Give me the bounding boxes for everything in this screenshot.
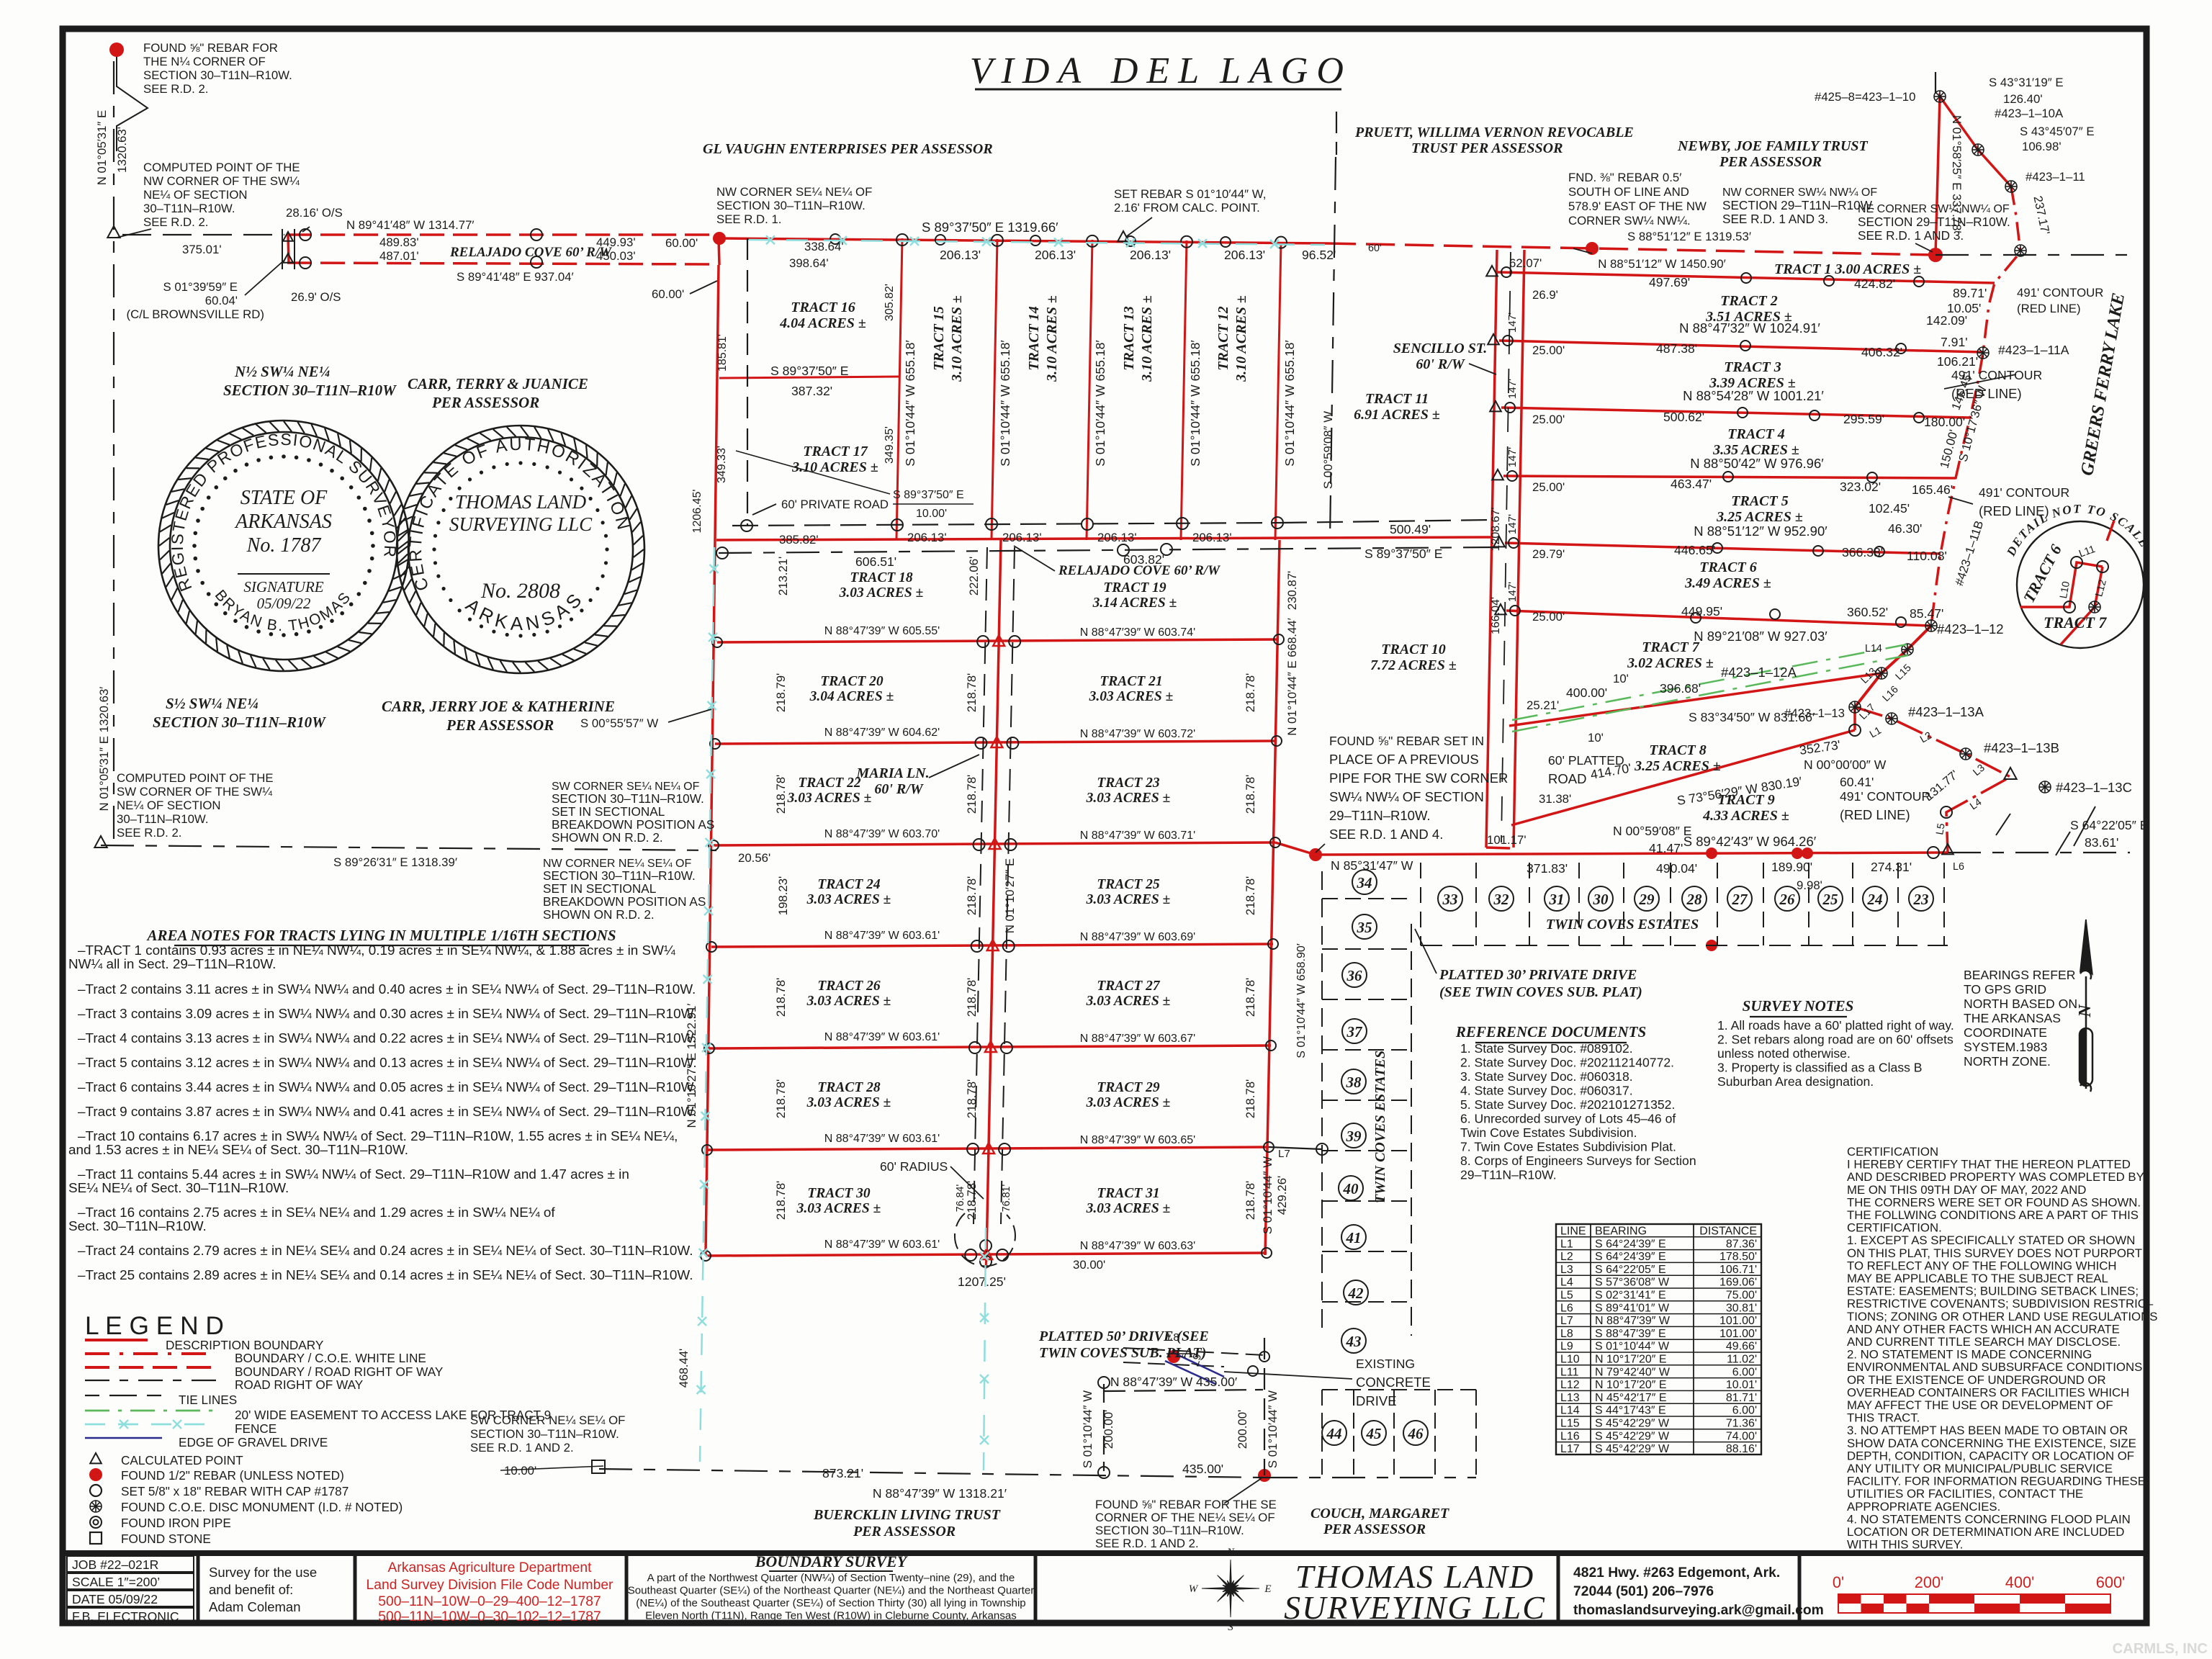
svg-text:218.78': 218.78' <box>1244 775 1257 814</box>
svg-text:30–T11N–R10W.: 30–T11N–R10W. <box>143 202 235 215</box>
svg-text:N 88°47′39″ W 603.61': N 88°47′39″ W 603.61' <box>824 1238 940 1251</box>
svg-text:9.98': 9.98' <box>1797 878 1822 892</box>
svg-text:S 88°47′39″ E: S 88°47′39″ E <box>1595 1328 1666 1340</box>
svg-text:N 88°47′39″ W 603.69': N 88°47′39″ W 603.69' <box>1080 931 1195 943</box>
svg-text:Adam Coleman: Adam Coleman <box>209 1599 301 1614</box>
svg-text:FOUND ⅝" REBAR SET IN: FOUND ⅝" REBAR SET IN <box>1329 734 1484 748</box>
svg-text:10.00': 10.00' <box>916 508 947 520</box>
svg-text:MAY AFFECT THE USE OR DEVELOPM: MAY AFFECT THE USE OR DEVELOPMENT OF <box>1847 1398 2113 1412</box>
svg-text:44: 44 <box>1326 1425 1342 1442</box>
svg-text:S 64°24′39″ E: S 64°24′39″ E <box>1595 1238 1666 1250</box>
svg-text:500.62': 500.62' <box>1663 410 1704 424</box>
svg-text:TRACT 17: TRACT 17 <box>803 444 868 459</box>
svg-text:218.78': 218.78' <box>965 673 979 713</box>
svg-text:L14: L14 <box>1560 1405 1580 1417</box>
svg-text:CARR, TERRY & JUANICE: CARR, TERRY & JUANICE <box>408 375 588 392</box>
svg-text:3.14 ACRES ±: 3.14 ACRES ± <box>1092 595 1177 611</box>
svg-text:106.21': 106.21' <box>1937 354 1978 369</box>
svg-text:TWIN COVES ESTATES: TWIN COVES ESTATES <box>1372 1051 1388 1203</box>
svg-text:Eleven North (T11N), Range Ten: Eleven North (T11N), Range Ten West (R10… <box>645 1610 1017 1622</box>
svg-text:S 64°22′05″ E: S 64°22′05″ E <box>1595 1264 1666 1276</box>
svg-text:4.04 ACRES ±: 4.04 ACRES ± <box>779 315 866 331</box>
svg-text:147': 147' <box>1506 514 1519 534</box>
svg-text:N 88°51′12″ W 952.90′: N 88°51′12″ W 952.90′ <box>1694 523 1827 539</box>
svg-text:TRACT 15: TRACT 15 <box>931 306 947 370</box>
svg-text:101.00': 101.00' <box>1719 1315 1757 1327</box>
svg-text:ME ON THIS 09TH DAY OF MAY, 20: ME ON THIS 09TH DAY OF MAY, 2022 AND <box>1847 1183 2086 1197</box>
svg-text:CARR, JERRY JOE & KATHERINE: CARR, JERRY JOE & KATHERINE <box>382 698 615 715</box>
svg-text:COMPUTED POINT OF THE: COMPUTED POINT OF THE <box>143 161 300 174</box>
svg-text:SHOW DATA CONCERNING THE EXIST: SHOW DATA CONCERNING THE EXISTENCE, SIZE <box>1847 1437 2136 1450</box>
svg-text:446.65': 446.65' <box>1674 543 1715 557</box>
svg-text:ESTATE: EASEMENTS; BUILDING SE: ESTATE: EASEMENTS; BUILDING SETBACK LINE… <box>1847 1285 2139 1298</box>
svg-text:4. NO STATEMENTS CONCERNING FL: 4. NO STATEMENTS CONCERNING FLOOD PLAIN <box>1847 1512 2131 1526</box>
svg-text:406.32': 406.32' <box>1861 345 1902 359</box>
svg-text:I HEREBY CERTIFY THAT THE HERE: I HEREBY CERTIFY THAT THE HEREON PLATTED <box>1847 1158 2131 1172</box>
svg-text:FOUND ⅝" REBAR FOR THE SE: FOUND ⅝" REBAR FOR THE SE <box>1095 1498 1277 1511</box>
svg-text:N 88°47′39″ W 603.71': N 88°47′39″ W 603.71' <box>1080 829 1195 842</box>
svg-text:TRACT 12: TRACT 12 <box>1215 306 1231 370</box>
svg-text:N 88°47′39″ W 603.61': N 88°47′39″ W 603.61' <box>824 1031 940 1043</box>
svg-text:TRACT 20: TRACT 20 <box>820 674 883 689</box>
svg-text:BEARINGS REFER: BEARINGS REFER <box>1964 968 2075 982</box>
svg-text:GL VAUGHN ENTERPRISES PER ASSE: GL VAUGHN ENTERPRISES PER ASSESSOR <box>703 141 993 157</box>
svg-text:3. State Survey Doc. #060318.: 3. State Survey Doc. #060318. <box>1460 1069 1633 1084</box>
svg-text:TRACT 24: TRACT 24 <box>817 877 880 892</box>
svg-text:96.52': 96.52' <box>1302 248 1336 262</box>
svg-text:L7: L7 <box>1278 1148 1290 1160</box>
svg-text:60' R/W: 60' R/W <box>1416 356 1465 372</box>
svg-text:500–11N–10W–0–29–400–12–1787: 500–11N–10W–0–29–400–12–1787 <box>378 1594 601 1609</box>
svg-text:PLACE OF A PREVIOUS: PLACE OF A PREVIOUS <box>1329 752 1479 767</box>
svg-text:S 89°37′50″ E: S 89°37′50″ E <box>893 489 964 501</box>
svg-text:60.04': 60.04' <box>205 294 238 307</box>
svg-text:VIDA: VIDA <box>970 50 1089 91</box>
svg-text:SEE R.D. 1.: SEE R.D. 1. <box>716 212 781 226</box>
svg-text:39: 39 <box>1346 1128 1362 1145</box>
svg-text:SECTION 30–T11N–R10W.: SECTION 30–T11N–R10W. <box>1095 1524 1244 1537</box>
svg-text:3.03 ACRES ±: 3.03 ACRES ± <box>1086 1201 1171 1216</box>
svg-text:EXISTING: EXISTING <box>1356 1357 1415 1371</box>
svg-text:206.13': 206.13' <box>1130 248 1171 262</box>
svg-text:371.83': 371.83' <box>1527 861 1568 876</box>
svg-text:25.00': 25.00' <box>1532 343 1565 357</box>
svg-text:S 43°31′19″ E: S 43°31′19″ E <box>1989 76 2064 89</box>
svg-text:385.82': 385.82' <box>779 533 819 547</box>
svg-text:JOB #22–021R: JOB #22–021R <box>72 1557 158 1572</box>
svg-text:THE FOLLWING CONDITIONS ARE A: THE FOLLWING CONDITIONS ARE A PART OF TH… <box>1847 1208 2139 1222</box>
svg-text:28: 28 <box>1686 891 1703 908</box>
svg-text:S 00°55′57″ W: S 00°55′57″ W <box>580 716 658 730</box>
svg-text:206.13': 206.13' <box>1224 248 1265 262</box>
svg-text:SW¼ NW¼ OF SECTION: SW¼ NW¼ OF SECTION <box>1329 789 1484 804</box>
svg-text:TRACT 18: TRACT 18 <box>850 570 912 585</box>
svg-text:(NE¼) of the Southeast Quarter: (NE¼) of the Southeast Quarter (SE¼) of … <box>636 1597 1025 1609</box>
svg-text:366.38': 366.38' <box>1842 545 1883 559</box>
svg-text:PRUETT, WILLIMA VERNON REVOCAB: PRUETT, WILLIMA VERNON REVOCABLE <box>1354 125 1634 140</box>
svg-text:218.78': 218.78' <box>774 775 788 814</box>
svg-text:41.47': 41.47' <box>1649 841 1683 855</box>
svg-text:3.10 ACRES ±: 3.10 ACRES ± <box>1233 295 1249 382</box>
svg-text:FOUND 1/2" REBAR (UNLESS NOTED: FOUND 1/2" REBAR (UNLESS NOTED) <box>121 1468 344 1483</box>
svg-text:3.03 ACRES ±: 3.03 ACRES ± <box>787 791 872 806</box>
svg-text:3.03 ACRES ±: 3.03 ACRES ± <box>1086 1095 1171 1110</box>
svg-text:3.03 ACRES ±: 3.03 ACRES ± <box>1086 892 1171 907</box>
svg-text:40: 40 <box>1343 1180 1359 1197</box>
svg-text:3.03 ACRES ±: 3.03 ACRES ± <box>806 994 891 1009</box>
svg-text:4.33 ACRES ±: 4.33 ACRES ± <box>1702 808 1789 824</box>
svg-text:–Tract 4 contains 3.13 acres ±: –Tract 4 contains 3.13 acres ± in SW¼ NW… <box>78 1031 697 1046</box>
svg-text:3.03 ACRES ±: 3.03 ACRES ± <box>1086 791 1171 806</box>
svg-text:218.78': 218.78' <box>1244 978 1257 1017</box>
svg-text:60.00': 60.00' <box>652 287 684 301</box>
svg-text:42: 42 <box>1348 1285 1364 1302</box>
svg-text:274.31': 274.31' <box>1871 860 1912 874</box>
svg-text:147': 147' <box>1506 379 1519 399</box>
svg-text:N 88°50′42″ W 976.96′: N 88°50′42″ W 976.96′ <box>1690 456 1824 471</box>
svg-text:TWIN COVES SUB. PLAT): TWIN COVES SUB. PLAT) <box>1039 1345 1206 1361</box>
svg-text:147': 147' <box>1506 582 1519 602</box>
svg-text:32: 32 <box>1493 891 1510 908</box>
svg-text:PER ASSESSOR: PER ASSESSOR <box>1719 154 1822 170</box>
svg-text:185.81': 185.81' <box>716 334 729 372</box>
svg-text:NW CORNER SW¼ NW¼ OF: NW CORNER SW¼ NW¼ OF <box>1722 186 1877 199</box>
svg-text:1320.63': 1320.63' <box>115 127 129 173</box>
svg-text:SHOWN ON R.D. 2.: SHOWN ON R.D. 2. <box>543 907 655 922</box>
svg-text:#423–1–11A: #423–1–11A <box>1998 343 2069 357</box>
svg-text:N: N <box>2076 1004 2095 1018</box>
svg-text:5. State Survey Doc. #20210127: 5. State Survey Doc. #202101271352. <box>1460 1097 1675 1112</box>
svg-text:106.98': 106.98' <box>2022 140 2062 153</box>
svg-text:2. Set rebars along road are o: 2. Set rebars along road are on 60' offs… <box>1717 1033 1954 1047</box>
svg-text:FOUND STONE: FOUND STONE <box>121 1532 211 1546</box>
svg-text:3.25 ACRES ±: 3.25 ACRES ± <box>1634 758 1721 774</box>
svg-text:L17: L17 <box>1560 1443 1580 1455</box>
svg-text:NW CORNER SE¼ NE¼ OF: NW CORNER SE¼ NE¼ OF <box>716 185 872 199</box>
svg-text:N 88°47′39″ W 603.61': N 88°47′39″ W 603.61' <box>824 930 940 942</box>
svg-text:PIPE FOR THE SW CORNER: PIPE FOR THE SW CORNER <box>1329 770 1508 786</box>
svg-text:(RED LINE): (RED LINE) <box>2017 302 2081 315</box>
svg-text:101.17': 101.17' <box>1487 833 1527 847</box>
svg-text:218.78': 218.78' <box>1244 673 1257 713</box>
svg-text:206.13': 206.13' <box>1002 531 1042 544</box>
svg-text:TRACT 28: TRACT 28 <box>817 1080 880 1095</box>
svg-text:L5: L5 <box>1560 1290 1573 1302</box>
svg-text:198.23': 198.23' <box>776 876 790 916</box>
svg-text:400.00': 400.00' <box>1566 685 1607 700</box>
svg-text:60' R/W: 60' R/W <box>874 781 923 797</box>
svg-text:PER ASSESSOR: PER ASSESSOR <box>1323 1521 1426 1537</box>
svg-text:SEE R.D. 1 AND 3.: SEE R.D. 1 AND 3. <box>1858 228 1964 243</box>
svg-text:S 01°10′44″ W: S 01°10′44″ W <box>1266 1390 1280 1468</box>
svg-text:SE¼ NE¼ of Sect. 30–T11N–R10W.: SE¼ NE¼ of Sect. 30–T11N–R10W. <box>68 1181 289 1196</box>
svg-text:L1: L1 <box>1560 1238 1573 1250</box>
svg-text:FACILITY. FOR INFORMATION REGU: FACILITY. FOR INFORMATION REGUARDING THE… <box>1847 1475 2146 1488</box>
svg-text:180.00': 180.00' <box>1924 415 1965 429</box>
svg-text:L16: L16 <box>1560 1430 1580 1442</box>
svg-text:387.32': 387.32' <box>791 384 832 398</box>
svg-text:463.47': 463.47' <box>1671 477 1712 491</box>
svg-text:N 88°51′12″ W 1450.90′: N 88°51′12″ W 1450.90′ <box>1598 257 1726 271</box>
svg-text:3.03 ACRES ±: 3.03 ACRES ± <box>839 585 924 601</box>
svg-text:ROAD: ROAD <box>1548 771 1586 786</box>
svg-text:#425–8=423–1–10: #425–8=423–1–10 <box>1815 90 1915 104</box>
svg-text:TRUST PER ASSESSOR: TRUST PER ASSESSOR <box>1411 140 1563 156</box>
svg-text:500–11N–10W–0–30–102–12–1787: 500–11N–10W–0–30–102–12–1787 <box>378 1609 601 1624</box>
svg-text:29: 29 <box>1639 891 1655 908</box>
svg-text:–Tract 25 contains 2.89 acres: –Tract 25 contains 2.89 acres ± in NE¼ S… <box>78 1268 693 1283</box>
svg-text:L E G E N D: L E G E N D <box>85 1312 224 1340</box>
svg-text:SET IN SECTIONAL: SET IN SECTIONAL <box>543 881 656 896</box>
svg-text:No. 2808: No. 2808 <box>480 579 560 603</box>
svg-text:206.13': 206.13' <box>940 248 981 262</box>
svg-text:S 64°22′05″ E: S 64°22′05″ E <box>2070 818 2149 832</box>
svg-text:20' WIDE EASEMENT TO ACCESS LA: 20' WIDE EASEMENT TO ACCESS LAKE FOR TRA… <box>235 1408 551 1422</box>
svg-text:COMPUTED POINT OF THE: COMPUTED POINT OF THE <box>117 771 274 785</box>
svg-text:6.00': 6.00' <box>1732 1366 1757 1378</box>
svg-text:1. All roads have a 60' platte: 1. All roads have a 60' platted right of… <box>1717 1018 1954 1033</box>
svg-text:468.44': 468.44' <box>677 1349 691 1388</box>
svg-text:305.82': 305.82' <box>884 284 896 321</box>
svg-text:N 88°47′39″ W 603.74': N 88°47′39″ W 603.74' <box>1080 626 1195 639</box>
svg-text:SET IN SECTIONAL: SET IN SECTIONAL <box>552 804 665 819</box>
svg-text:8. Corps of Engineers Surveys: 8. Corps of Engineers Surveys for Sectio… <box>1460 1154 1696 1168</box>
svg-text:TRACT 14: TRACT 14 <box>1026 306 1042 370</box>
svg-text:4. State Survey Doc. #060317.: 4. State Survey Doc. #060317. <box>1460 1084 1633 1098</box>
svg-text:NORTH BASED ON: NORTH BASED ON <box>1964 997 2077 1011</box>
svg-text:N 01°10′44″ E 668.44′: N 01°10′44″ E 668.44′ <box>1285 618 1299 736</box>
svg-text:ENVIRONMENTAL AND SUBSURFACE C: ENVIRONMENTAL AND SUBSURFACE CONDITIONS, <box>1847 1360 2146 1374</box>
svg-text:SECTION 30–T11N–R10W.: SECTION 30–T11N–R10W. <box>543 868 696 883</box>
svg-text:Twin Cove Estates Subdivision.: Twin Cove Estates Subdivision. <box>1460 1125 1637 1140</box>
svg-text:N½ SW¼ NE¼: N½ SW¼ NE¼ <box>234 363 330 380</box>
svg-text:DATE 05/09/22: DATE 05/09/22 <box>72 1592 158 1606</box>
svg-text:4821 Hwy. #263 Edgemont, Ark.: 4821 Hwy. #263 Edgemont, Ark. <box>1573 1565 1780 1581</box>
svg-text:600': 600' <box>2096 1573 2126 1591</box>
svg-text:S 01°10′44″ W 655.18′: S 01°10′44″ W 655.18′ <box>1188 340 1202 466</box>
svg-text:BOUNDARY SURVEY: BOUNDARY SURVEY <box>755 1552 909 1570</box>
svg-text:APPROPRIATE AGENCIES.: APPROPRIATE AGENCIES. <box>1847 1500 2000 1514</box>
svg-text:ARKANSAS: ARKANSAS <box>234 511 332 533</box>
svg-text:3.49 ACRES ±: 3.49 ACRES ± <box>1684 575 1771 591</box>
svg-text:CERTIFICATION: CERTIFICATION <box>1847 1145 1938 1159</box>
svg-text:SECTION 30–T11N–R10W.: SECTION 30–T11N–R10W. <box>470 1427 619 1441</box>
svg-text:102.45': 102.45' <box>1869 501 1910 516</box>
svg-text:SECTION 29–T11N–R10W.: SECTION 29–T11N–R10W. <box>1722 198 1875 212</box>
svg-text:RESTRICTIVE COVENANTS; SUBDIVI: RESTRICTIVE COVENANTS; SUBDIVISION RESTR… <box>1847 1297 2154 1310</box>
svg-text:46: 46 <box>1408 1425 1424 1442</box>
svg-text:60': 60' <box>1368 243 1382 254</box>
svg-text:NE CORNER SW¼ NW¼ OF: NE CORNER SW¼ NW¼ OF <box>1858 203 2010 215</box>
svg-text:S 89°41′48″ E 937.04′: S 89°41′48″ E 937.04′ <box>457 270 574 284</box>
svg-text:#423–1–13B: #423–1–13B <box>1984 740 2059 755</box>
svg-text:349.33': 349.33' <box>716 446 728 483</box>
svg-text:N 00°59′08″ E: N 00°59′08″ E <box>1613 824 1692 838</box>
svg-text:26: 26 <box>1779 891 1796 908</box>
svg-text:TIONS; ZONING OR OTHER LAND US: TIONS; ZONING OR OTHER LAND USE REGULATI… <box>1847 1310 2157 1323</box>
svg-text:TRACT 11: TRACT 11 <box>1365 391 1429 407</box>
svg-text:TIE LINES: TIE LINES <box>179 1393 237 1407</box>
svg-text:200.00': 200.00' <box>1236 1410 1249 1449</box>
svg-text:SECTION 30–T11N–R10W: SECTION 30–T11N–R10W <box>153 714 326 731</box>
svg-text:LOCATION OR DETERMINATION ARE: LOCATION OR DETERMINATION ARE INCLUDED <box>1847 1525 2124 1539</box>
svg-text:ROAD RIGHT OF WAY: ROAD RIGHT OF WAY <box>235 1377 364 1392</box>
svg-text:3.03 ACRES ±: 3.03 ACRES ± <box>796 1201 881 1216</box>
svg-text:489.83': 489.83' <box>379 235 419 249</box>
svg-text:DEL: DEL <box>1110 50 1208 91</box>
svg-text:34: 34 <box>1357 874 1372 891</box>
svg-text:SECTION 30–T11N–R10W.: SECTION 30–T11N–R10W. <box>143 68 292 82</box>
svg-text:SET 5/8" x 18" REBAR WITH CAP: SET 5/8" x 18" REBAR WITH CAP #1787 <box>121 1484 349 1498</box>
svg-text:435.00': 435.00' <box>1182 1462 1223 1476</box>
svg-text:COORDINATE: COORDINATE <box>1964 1025 2047 1040</box>
svg-text:L8: L8 <box>1167 1331 1179 1344</box>
svg-text:N 88°47′39″ W 603.67': N 88°47′39″ W 603.67' <box>1080 1033 1195 1045</box>
svg-text:71.36': 71.36' <box>1726 1418 1757 1430</box>
svg-text:TRACT 3: TRACT 3 <box>1724 359 1781 375</box>
svg-text:L11: L11 <box>1560 1366 1579 1378</box>
svg-text:33: 33 <box>1442 891 1458 908</box>
svg-text:ANY UTILITY OR MUNICIPAL/PUBLI: ANY UTILITY OR MUNICIPAL/PUBLIC SERVICE <box>1847 1462 2113 1475</box>
svg-text:491' CONTOUR: 491' CONTOUR <box>1979 485 2069 500</box>
svg-text:S 01°39′59″ E: S 01°39′59″ E <box>163 280 238 294</box>
svg-text:SECTION 30–T11N–R10W.: SECTION 30–T11N–R10W. <box>552 791 704 806</box>
svg-text:TRACT 31: TRACT 31 <box>1097 1186 1159 1201</box>
svg-text:147': 147' <box>1506 313 1519 333</box>
svg-text:24: 24 <box>1867 891 1883 908</box>
svg-text:and benefit of:: and benefit of: <box>209 1582 293 1597</box>
svg-text:N 88°47′39″ W: N 88°47′39″ W <box>1595 1315 1671 1327</box>
svg-text:TRACT 7: TRACT 7 <box>2044 613 2107 631</box>
svg-text:TRACT 22: TRACT 22 <box>798 775 860 791</box>
svg-text:N 89°21′08″ W 927.03′: N 89°21′08″ W 927.03′ <box>1694 629 1827 644</box>
svg-text:SURVEYING LLC: SURVEYING LLC <box>449 513 593 535</box>
svg-text:400': 400' <box>2005 1573 2035 1591</box>
svg-text:206.13': 206.13' <box>907 531 947 544</box>
svg-text:29–T11N–R10W.: 29–T11N–R10W. <box>1460 1168 1557 1182</box>
svg-text:N 79°42′40″ W: N 79°42′40″ W <box>1595 1366 1671 1378</box>
svg-text:STATE OF: STATE OF <box>240 487 328 509</box>
svg-text:L5: L5 <box>1934 822 1948 835</box>
svg-text:10.01': 10.01' <box>1726 1379 1757 1391</box>
svg-text:62.07': 62.07' <box>1509 256 1542 270</box>
svg-text:87.36': 87.36' <box>1726 1238 1757 1250</box>
svg-text:TRACT 7: TRACT 7 <box>1642 639 1699 655</box>
svg-text:#423–1–12: #423–1–12 <box>1937 621 2004 637</box>
svg-text:0': 0' <box>1833 1573 1844 1591</box>
svg-text:L9: L9 <box>1560 1341 1573 1353</box>
svg-text:23: 23 <box>1913 891 1929 908</box>
svg-text:THIS TRACT.: THIS TRACT. <box>1847 1411 1920 1425</box>
svg-text:28.16' O/S: 28.16' O/S <box>286 206 343 220</box>
svg-text:S 01°10′44″ W 655.18′: S 01°10′44″ W 655.18′ <box>1093 340 1107 466</box>
svg-text:UTILITIES OR FACILITIES, CONTA: UTILITIES OR FACILITIES, CONTACT THE <box>1847 1487 2083 1501</box>
svg-text:MAY BE APPLICABLE TO THE SUBJE: MAY BE APPLICABLE TO THE SUBJECT REAL <box>1847 1272 2108 1285</box>
svg-text:AND CURRENT TITLE SEARCH MAY D: AND CURRENT TITLE SEARCH MAY DISCLOSE. <box>1847 1335 2121 1349</box>
svg-text:1. EXCEPT AS SPECIFICALLY STAT: 1. EXCEPT AS SPECIFICALLY STATED OR SHOW… <box>1847 1233 2135 1247</box>
svg-text:106.71': 106.71' <box>1719 1264 1757 1276</box>
svg-text:3.25 ACRES ±: 3.25 ACRES ± <box>1716 509 1803 525</box>
svg-text:(SEE TWIN COVES SUB. PLAT): (SEE TWIN COVES SUB. PLAT) <box>1439 984 1642 1000</box>
svg-text:N 88°47′39″ W 604.62': N 88°47′39″ W 604.62' <box>824 727 940 739</box>
svg-text:–Tract 24 contains 2.79 acres: –Tract 24 contains 2.79 acres ± in NE¼ S… <box>78 1244 693 1259</box>
svg-text:L2: L2 <box>1560 1251 1573 1263</box>
svg-text:30–T11N–R10W.: 30–T11N–R10W. <box>117 812 208 826</box>
svg-text:230.87': 230.87' <box>1285 571 1299 611</box>
svg-text:206.13': 206.13' <box>1035 248 1076 262</box>
svg-text:N 88°47′39″ W 603.72': N 88°47′39″ W 603.72' <box>1080 728 1195 740</box>
svg-text:TRACT 25: TRACT 25 <box>1097 877 1159 892</box>
svg-text:10': 10' <box>1613 672 1629 685</box>
svg-text:SEE R.D. 2.: SEE R.D. 2. <box>143 82 208 96</box>
svg-text:10': 10' <box>1588 731 1604 745</box>
svg-text:SEE R.D. 1 AND 2.: SEE R.D. 1 AND 2. <box>1095 1537 1199 1550</box>
svg-text:L6: L6 <box>1953 861 1964 873</box>
svg-text:FOUND ⅝" REBAR FOR: FOUND ⅝" REBAR FOR <box>143 41 278 55</box>
svg-text:CORNER OF THE NE¼ SE¼ OF: CORNER OF THE NE¼ SE¼ OF <box>1095 1511 1275 1524</box>
svg-text:S 57°36′08″ W: S 57°36′08″ W <box>1595 1277 1670 1289</box>
svg-text:–Tract 16 contains 2.75 acres: –Tract 16 contains 2.75 acres ± in SE¼ N… <box>78 1205 555 1220</box>
svg-text:NW¼ all in Sect. 29–T11N–R10W.: NW¼ all in Sect. 29–T11N–R10W. <box>68 957 276 972</box>
svg-text:218.78': 218.78' <box>774 1181 788 1220</box>
svg-text:S 45°42′29″ W: S 45°42′29″ W <box>1595 1418 1670 1430</box>
svg-text:AND DESCRIBED PROPERTY WAS COM: AND DESCRIBED PROPERTY WAS COMPLETED BY <box>1847 1170 2144 1184</box>
svg-text:7.72 ACRES ±: 7.72 ACRES ± <box>1370 657 1457 673</box>
svg-text:72044 (501) 206–7976: 72044 (501) 206–7976 <box>1573 1584 1714 1599</box>
svg-text:29.79': 29.79' <box>1532 547 1565 561</box>
svg-text:SIGNATURE: SIGNATURE <box>243 578 323 595</box>
svg-text:L3: L3 <box>1560 1264 1573 1276</box>
svg-text:75.00': 75.00' <box>1726 1290 1757 1302</box>
svg-text:–Tract 2 contains 3.11 acres ±: –Tract 2 contains 3.11 acres ± in SW¼ NW… <box>78 982 696 997</box>
svg-text:PER ASSESSOR: PER ASSESSOR <box>446 716 554 734</box>
svg-text:PER ASSESSOR: PER ASSESSOR <box>431 394 539 411</box>
svg-text:SEE R.D. 1 AND 3.: SEE R.D. 1 AND 3. <box>1722 212 1828 226</box>
svg-text:S 01°10′44″ W 655.18′: S 01°10′44″ W 655.18′ <box>998 340 1012 466</box>
svg-text:TRACT 1 3.00 ACRES ±: TRACT 1 3.00 ACRES ± <box>1774 261 1921 277</box>
svg-text:TRACT 21: TRACT 21 <box>1100 674 1162 689</box>
svg-text:TRACT 19: TRACT 19 <box>1103 580 1166 595</box>
svg-text:L12: L12 <box>1560 1379 1580 1391</box>
svg-text:#423–1–11: #423–1–11 <box>2026 170 2085 184</box>
svg-text:S 01°10′44″ W 658.90′: S 01°10′44″ W 658.90′ <box>1295 943 1308 1058</box>
svg-text:375.01': 375.01' <box>182 243 222 256</box>
svg-text:88.16': 88.16' <box>1726 1443 1757 1455</box>
svg-text:43: 43 <box>1346 1333 1362 1350</box>
svg-text:3.10 ACRES ±: 3.10 ACRES ± <box>1044 295 1060 382</box>
svg-text:3.04 ACRES ±: 3.04 ACRES ± <box>809 689 894 704</box>
svg-text:TRACT 6: TRACT 6 <box>1699 559 1756 575</box>
svg-text:165.46': 165.46' <box>1912 482 1953 497</box>
svg-text:LAGO: LAGO <box>1219 50 1352 91</box>
svg-text:218.78': 218.78' <box>774 1079 788 1119</box>
svg-text:200.00': 200.00' <box>1102 1410 1115 1449</box>
svg-text:NORTH ZONE.: NORTH ZONE. <box>1964 1054 2051 1069</box>
svg-text:3.10 ACRES ±: 3.10 ACRES ± <box>1139 295 1155 382</box>
svg-text:6.91 ACRES ±: 6.91 ACRES ± <box>1354 407 1440 423</box>
svg-text:2. NO STATEMENT IS MADE CONCER: 2. NO STATEMENT IS MADE CONCERNING <box>1847 1348 2092 1362</box>
svg-text:3.10 ACRES ±: 3.10 ACRES ± <box>791 459 878 475</box>
svg-text:169.06': 169.06' <box>1719 1277 1757 1289</box>
svg-text:SENCILLO ST.: SENCILLO ST. <box>1393 341 1487 356</box>
svg-text:BREAKDOWN POSITION AS: BREAKDOWN POSITION AS <box>552 817 714 832</box>
svg-text:101.00': 101.00' <box>1719 1328 1757 1340</box>
svg-text:2.16' FROM CALC. POINT.: 2.16' FROM CALC. POINT. <box>1114 201 1260 215</box>
svg-text:Southeast Quarter (SE¼) of the: Southeast Quarter (SE¼) of the Northeast… <box>628 1585 1035 1597</box>
svg-text:218.78': 218.78' <box>1244 1079 1257 1119</box>
svg-text:SET REBAR S 01°10′44″ W,: SET REBAR S 01°10′44″ W, <box>1114 187 1266 201</box>
svg-text:189.90': 189.90' <box>1771 860 1812 874</box>
